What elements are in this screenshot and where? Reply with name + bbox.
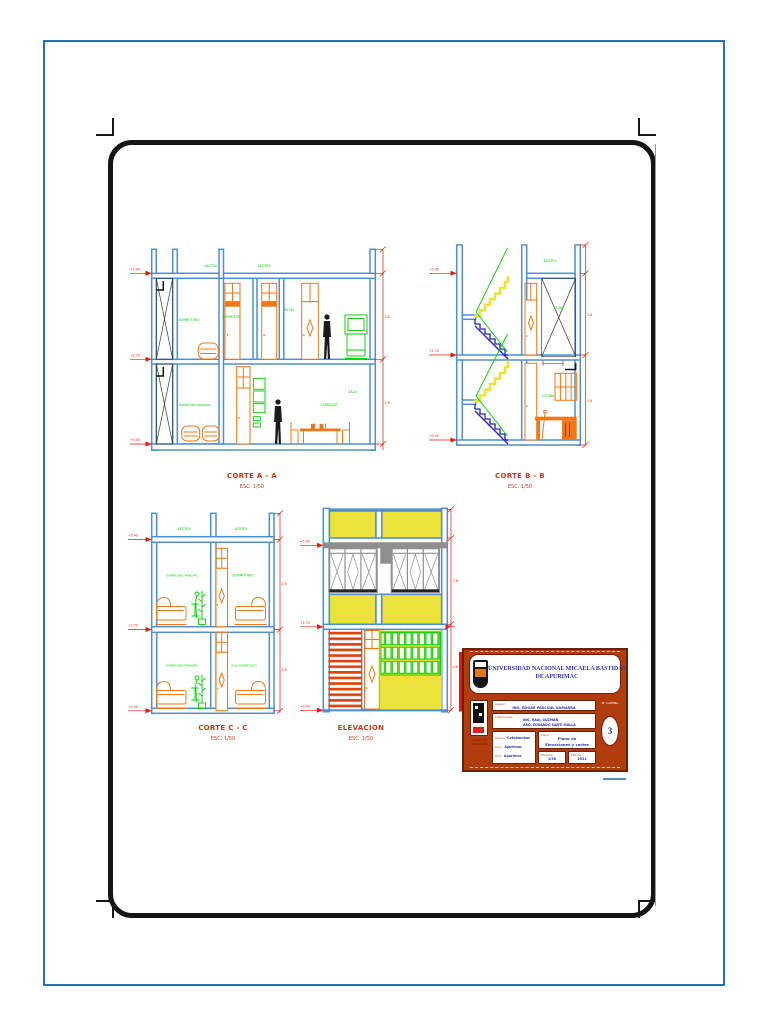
plano-value: Plano de Elevaciones y cortes <box>539 736 595 748</box>
prov-label: Prov: <box>495 745 502 749</box>
upper-window <box>329 548 376 592</box>
title-block-underline <box>603 778 626 780</box>
room-label: SS.HH <box>284 308 294 312</box>
title-block-left: PLANO DE UBICACION <box>469 700 489 764</box>
azotea-label: AZOTEA <box>234 527 248 531</box>
dim-label: 2.6 <box>587 399 592 403</box>
corte-a-scale: ESC. 1/50 <box>217 484 287 490</box>
depto-field: Depto: Cotabambas <box>495 736 533 740</box>
escala-value: 1/50 <box>539 757 565 761</box>
university-name-line1: UNIVERSIDAD NACIONAL MICAELA BASTIDAS <box>488 666 626 674</box>
person-figure <box>274 399 282 444</box>
fecha-field: FECHA: 2021 <box>568 751 596 764</box>
level-label: +2.70 <box>300 621 310 625</box>
room-label: COCINA <box>542 394 555 398</box>
corte-b-structure <box>457 245 581 445</box>
asesor-field: Asesor: ING. EDGAR PASCUAL GAMARRA <box>492 700 596 711</box>
dim-label: 2.6 <box>453 579 458 583</box>
garage-gate <box>328 631 361 709</box>
title-block-header: UNIVERSIDAD NACIONAL MICAELA BASTIDAS DE… <box>469 654 621 694</box>
plano-label: Plano: <box>541 733 550 737</box>
dim-label: 2.6 <box>282 668 287 672</box>
asesor-label: Asesor: <box>495 702 506 706</box>
integrantes-values: ING. RAUL GUZMAN ARQ. EDUARDO SANTI MALL… <box>523 718 595 728</box>
level-label: +0.00 <box>429 434 439 438</box>
corte-b-title: CORTE B - B <box>485 472 555 480</box>
dist-value: Apurimac <box>504 754 522 758</box>
prov-field: Prov: Apurimac <box>495 745 533 749</box>
escala-fecha-row: ESCALA: 1/50 FECHA: 2021 <box>538 751 596 764</box>
room-label: DORMITORIO <box>179 318 200 322</box>
azotea-label: AZOTEA <box>177 527 191 531</box>
corte-b-scale: ESC. 1/50 <box>485 484 555 490</box>
dim-label: 2.6 <box>282 582 287 586</box>
level-label: +2.70 <box>429 349 439 353</box>
integrante-2: ARQ. EDUARDO SANTI MALLA <box>523 723 595 728</box>
location-fields: Depto: Cotabambas Prov: Apurimac Dist: A… <box>492 731 536 764</box>
university-shield-icon <box>473 660 488 688</box>
corte-a-dimension-line: 2.6 2.6 <box>375 246 389 450</box>
corte-a-title: CORTE A - A <box>217 472 287 480</box>
dim-label: 2.6 <box>385 401 390 405</box>
level-label: +5.40 <box>429 268 439 272</box>
corte-a-level-markers: +5.40 +2.70 +0.00 <box>130 268 152 447</box>
level-label: +0.00 <box>128 705 138 709</box>
lattice-window <box>381 632 441 675</box>
lamina-number-badge: 3 <box>601 716 619 746</box>
corte-c-structure <box>152 513 274 713</box>
location-and-plan-row: Depto: Cotabambas Prov: Apurimac Dist: A… <box>492 731 596 764</box>
room-label: CORREDOR <box>222 315 241 319</box>
title-block-body: PLANO DE UBICACION Asesor: ING. EDGAR PA… <box>469 700 621 764</box>
corner-mark-top-left <box>96 118 114 136</box>
corte-b-stairs <box>475 248 508 444</box>
room-label: DORMITORIO <box>233 574 254 578</box>
plano-field: Plano: Plano de Elevaciones y cortes <box>538 731 596 749</box>
azotea-label: AZOTEA <box>543 259 557 263</box>
asesor-value: ING. EDGAR PASCUAL GAMARRA <box>493 706 595 710</box>
map-graphic-base <box>473 727 484 733</box>
level-label: +5.40 <box>128 534 138 538</box>
integrantes-field: Integrantes: ING. RAUL GUZMAN ARQ. EDUAR… <box>492 713 596 729</box>
depto-label: Depto: <box>495 736 505 740</box>
room-label: SALA DORMITORIO <box>231 664 257 668</box>
corte-a-drawing: AZOTEA AZOTEA DORMITORIO CORREDOR SS.HH … <box>118 240 403 462</box>
plano-line2: Elevaciones y cortes <box>539 742 595 748</box>
sheet-frame-shadow <box>655 144 656 906</box>
corte-c-drawing: AZOTEA AZOTEA DORMITORIO PRINCIPAL DORMI… <box>118 503 298 723</box>
escala-field: ESCALA: 1/50 <box>538 751 566 764</box>
integrantes-label: Integrantes: <box>495 715 513 719</box>
dist-label: Dist: <box>495 754 502 758</box>
title-block-fields: Asesor: ING. EDGAR PASCUAL GAMARRA Integ… <box>492 700 596 764</box>
title-block: UNIVERSIDAD NACIONAL MICAELA BASTIDAS DE… <box>462 648 628 772</box>
university-name-line2: DE APURIMAC <box>488 674 626 682</box>
depto-value: Cotabambas <box>507 736 530 740</box>
prov-value: Apurimac <box>504 745 522 749</box>
corte-b-level-markers: +5.40 +2.70 +0.00 <box>429 268 457 443</box>
dist-field: Dist: Apurimac <box>495 754 533 758</box>
room-label: DORMITORIO PRINCIPAL <box>166 574 199 578</box>
plan-fields: Plano: Plano de Elevaciones y cortes ESC… <box>538 731 596 764</box>
level-label: +5.40 <box>130 268 140 272</box>
map-caption: PLANO DE UBICACION <box>468 739 490 746</box>
corte-c-level-markers: +5.40 +2.70 +0.00 <box>128 534 152 714</box>
dim-label: 2.6 <box>453 665 458 669</box>
room-label: COMEDOR <box>321 403 338 407</box>
university-name: UNIVERSIDAD NACIONAL MICAELA BASTIDAS DE… <box>488 666 626 682</box>
level-label: +2.70 <box>128 624 138 628</box>
map-graphic <box>473 703 484 723</box>
elevacion-scale: ESC. 1/50 <box>326 736 396 742</box>
corte-b-dimension-line: 2.6 2.6 <box>580 242 592 448</box>
level-label: +0.00 <box>130 438 140 442</box>
lamina-column: N° LAMINA 3 <box>599 700 621 764</box>
level-label: +2.70 <box>130 354 140 358</box>
location-map-thumbnail <box>470 700 488 736</box>
fecha-label: FECHA: <box>571 753 582 757</box>
document-page: AZOTEA AZOTEA DORMITORIO CORREDOR SS.HH … <box>0 0 768 1024</box>
lamina-number: 3 <box>608 726 613 736</box>
elevacion-dimension-line: 2.6 2.6 <box>447 506 458 713</box>
elevacion-drawing: +5.40 +2.70 +0.00 2.6 2.6 <box>298 503 468 721</box>
corner-mark-top-right <box>638 118 656 136</box>
elevacion-facade <box>323 508 463 712</box>
dim-label: 2.6 <box>587 313 592 317</box>
upper-window <box>392 548 439 592</box>
level-label: +5.40 <box>300 540 310 544</box>
corte-c-title: CORTE C - C <box>188 724 258 732</box>
room-label: DORMITORIO PRINCIPAL <box>179 403 212 407</box>
level-label: +0.00 <box>300 705 310 709</box>
corte-c-dimension-line: 2.6 2.6 <box>274 510 287 714</box>
corte-b-drawing: AZOTEA SS.HH COCINA +5.40 +2.70 +0.00 2.… <box>415 238 605 463</box>
azotea-label: AZOTEA <box>257 264 271 268</box>
elevacion-title: ELEVACION <box>326 724 396 732</box>
room-label: SS.HH <box>554 306 564 310</box>
azotea-label: AZOTEA <box>204 264 218 268</box>
university-logo <box>473 658 488 690</box>
room-label: DORMITORIO PRINCIPAL <box>166 664 199 668</box>
room-label: SALA <box>348 390 357 394</box>
dim-label: 2.6 <box>385 315 390 319</box>
person-figure <box>323 314 331 359</box>
escala-label: ESCALA: <box>541 753 554 757</box>
lamina-label: N° LAMINA <box>599 702 621 706</box>
corte-c-scale: ESC. 1/50 <box>188 736 258 742</box>
fecha-value: 2021 <box>569 757 595 761</box>
